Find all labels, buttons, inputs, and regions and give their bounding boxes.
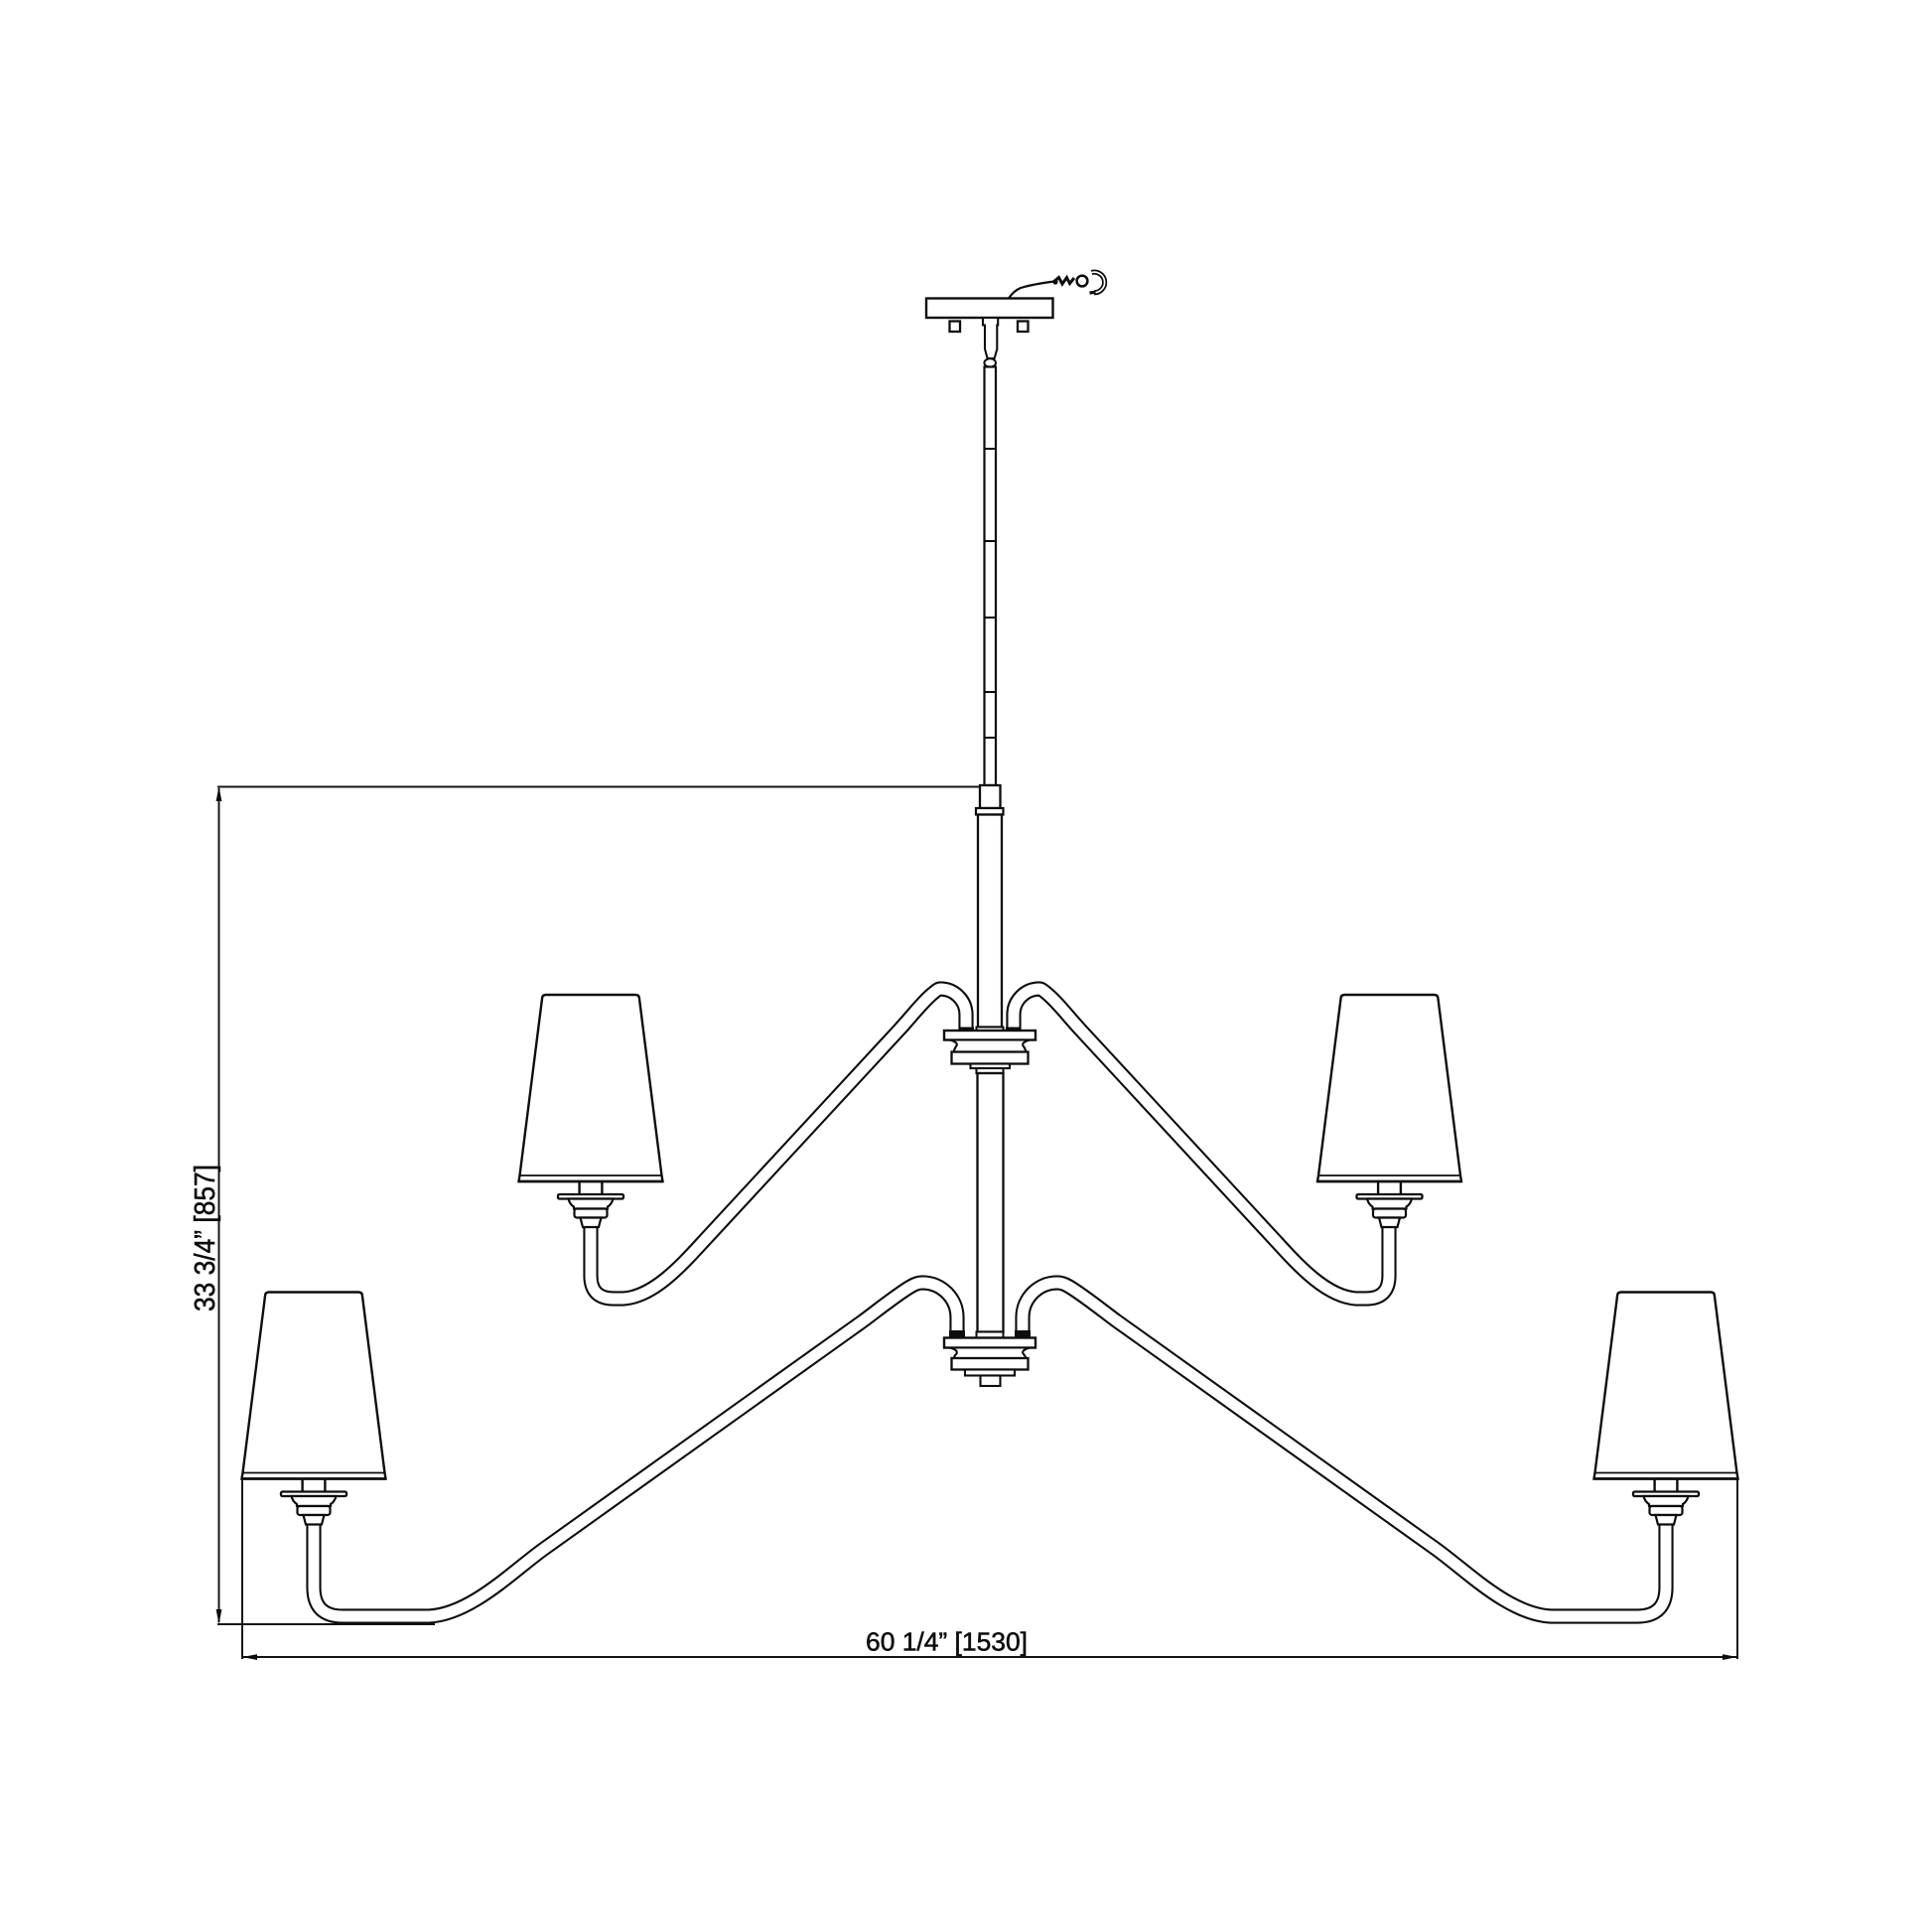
svg-text:33 3/4” [857]: 33 3/4” [857] bbox=[190, 1165, 221, 1311]
svg-text:60 1/4” [1530]: 60 1/4” [1530] bbox=[866, 1627, 1028, 1657]
